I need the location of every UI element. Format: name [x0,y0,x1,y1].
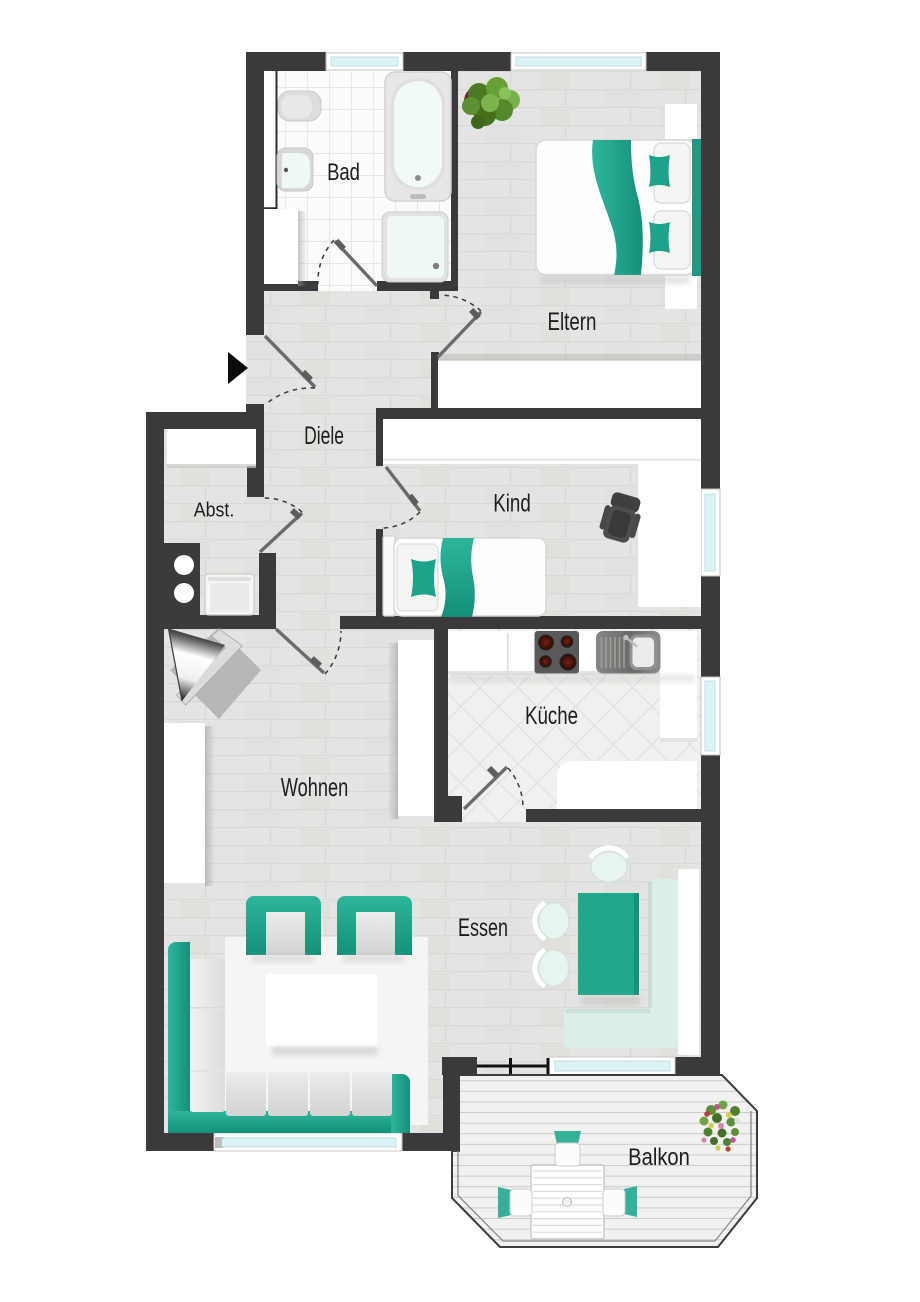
svg-text:Bad: Bad [327,159,360,186]
svg-text:Eltern: Eltern [548,307,597,335]
svg-text:Diele: Diele [304,421,344,450]
svg-text:Küche: Küche [525,701,578,729]
svg-text:Wohnen: Wohnen [281,773,348,802]
svg-text:Essen: Essen [458,913,508,942]
svg-text:Balkon: Balkon [628,1143,690,1170]
svg-text:Abst.: Abst. [194,500,235,522]
svg-text:Kind: Kind [493,489,531,517]
